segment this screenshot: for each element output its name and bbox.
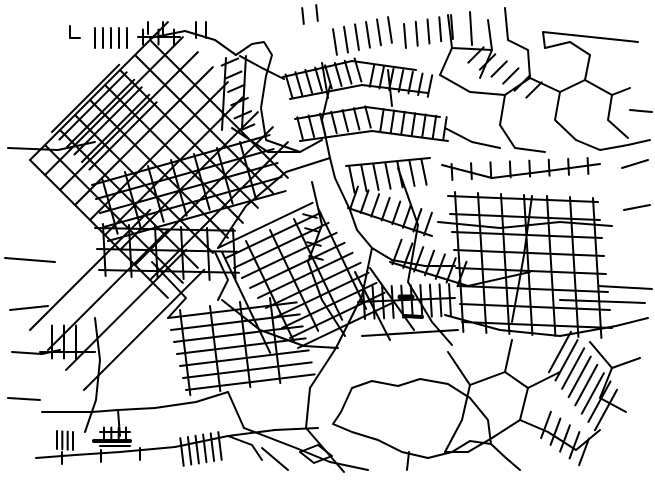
tight-ladder-rungs (439, 284, 441, 316)
rc-band-rungs-1 (349, 167, 354, 192)
ladderband-rungs-3 (309, 115, 315, 136)
road (624, 205, 650, 210)
ladderband-rungs-1 (305, 70, 312, 93)
ladderband-rungs-4 (412, 113, 415, 135)
ladderband-rungs-4 (401, 112, 404, 134)
midleft-diagonals (100, 163, 278, 213)
road (612, 358, 640, 368)
road (10, 306, 48, 310)
ladderband-rungs-4 (433, 116, 436, 138)
leftband-rungs (225, 72, 242, 79)
road (445, 128, 500, 148)
ladderband-rungs-3 (354, 108, 360, 129)
road (228, 392, 244, 428)
rc-band-rungs-2 (403, 205, 411, 228)
ladderband-rungs-4 (391, 110, 394, 132)
rightgrid-horizontals (448, 196, 598, 202)
tight-ladder-rungs (373, 287, 375, 319)
left-extension-diag (48, 230, 168, 350)
road (470, 372, 528, 438)
road (262, 448, 288, 470)
road (585, 80, 630, 95)
center-ladder (266, 263, 361, 308)
rightgrid-top-rungs (568, 159, 569, 175)
rightgrid-horizontals (460, 304, 610, 310)
road (42, 408, 155, 412)
ladderband-rungs-3 (331, 112, 337, 133)
tight-ladder-rungs (449, 284, 451, 316)
rightgrid-top-rungs (490, 162, 491, 178)
road (512, 196, 532, 322)
road (598, 286, 652, 289)
rightgrid-verticals (501, 194, 509, 334)
lower-ladder (174, 326, 303, 342)
br-diag-fan (562, 348, 584, 388)
br-diag-fan (549, 332, 571, 372)
rc-band-rungs-2 (382, 198, 390, 221)
road (555, 92, 576, 140)
top-fan-a (333, 29, 337, 55)
ladderband-rungs-4 (422, 114, 425, 136)
top-fan-a (355, 24, 359, 50)
topleft-subblocks (52, 65, 119, 132)
road (505, 8, 508, 40)
rightgrid-top-rungs (549, 160, 550, 176)
bl-wavy-fan (203, 435, 206, 463)
rightgrid-verticals (524, 195, 532, 335)
ladderband-rungs-3 (365, 106, 371, 127)
lower-ladder (180, 350, 309, 366)
road (442, 164, 600, 178)
top-fan-a (377, 20, 381, 46)
road (333, 388, 520, 470)
bl-wavy-fan (188, 437, 191, 465)
rightgrid-verticals (455, 192, 463, 332)
bl-wavy-fan (180, 438, 183, 466)
br-diag-fan-2 (560, 425, 570, 451)
road (5, 258, 55, 262)
road (630, 110, 652, 112)
map-page (0, 0, 655, 484)
tight-ladder-rungs (382, 286, 384, 318)
rc-band-rungs-2 (392, 202, 400, 225)
road (470, 12, 472, 45)
ladderband-rungs-2 (370, 65, 374, 87)
top-fan-a (388, 17, 392, 43)
road (505, 340, 512, 372)
road (228, 436, 262, 460)
road (242, 56, 246, 128)
road (445, 352, 470, 452)
road (520, 420, 576, 450)
street-map-svg (0, 0, 655, 484)
ladderband-rungs-1 (315, 68, 322, 91)
road (590, 342, 612, 398)
rc-band-rungs-1 (373, 165, 378, 190)
rc-band-rungs-1 (385, 163, 390, 188)
tight-ladder-rungs (420, 285, 422, 317)
rc-band-rungs-3 (414, 247, 423, 271)
road (405, 316, 422, 317)
leftband-rungs (228, 85, 245, 92)
ladderband-rungs-4 (380, 109, 383, 131)
top-fan-b (428, 20, 430, 44)
rightgrid-horizontals (456, 268, 606, 274)
ladderband-rungs-1 (295, 72, 302, 95)
road (346, 158, 430, 166)
road (500, 95, 545, 152)
center-ladder (258, 253, 353, 298)
top-fan-small (302, 8, 304, 24)
ladderband-rungs-1 (286, 74, 293, 97)
road (407, 452, 409, 470)
rc-band-rungs-1 (421, 159, 426, 184)
br-diag-fan (569, 357, 591, 397)
road (446, 438, 492, 452)
ladderband-rungs-2 (379, 67, 383, 89)
br-diag-fan-2 (551, 419, 561, 445)
rightgrid-verticals (547, 196, 555, 336)
road (261, 76, 300, 152)
road (600, 398, 626, 412)
top-fan-a (366, 22, 370, 48)
topleft-subblocks (60, 72, 127, 139)
blocky-verticals (103, 224, 106, 276)
topright-diag-rungs (492, 61, 507, 76)
rightgrid-top-rungs (452, 164, 453, 180)
rc-band-rungs-2 (424, 213, 432, 236)
road (560, 300, 645, 303)
rc-band-rungs-2 (371, 194, 379, 217)
ladderband-rungs-1 (335, 63, 342, 86)
road (222, 58, 226, 130)
center-ladder (298, 303, 393, 348)
blocky-horizontals (97, 249, 237, 252)
tight-ladder-rungs (430, 285, 432, 317)
rc-band-rungs-2 (361, 190, 369, 213)
road (608, 95, 628, 138)
road (70, 26, 80, 38)
leftband-rungs (222, 58, 239, 65)
left-extension-diag (84, 270, 204, 390)
road (440, 15, 452, 75)
bl-wavy-fan (218, 432, 221, 460)
road (150, 31, 236, 55)
top-fan-a (344, 27, 348, 53)
ladderband-rungs-1 (345, 61, 352, 84)
road (452, 48, 492, 50)
rc-band-rungs-1 (361, 166, 366, 191)
br-diag-fan (575, 365, 597, 405)
road (576, 140, 650, 150)
top-fan-small (316, 5, 318, 21)
ladderband-rungs-3 (343, 110, 349, 131)
br-diag-fan (582, 373, 604, 413)
leftband-rungs (238, 124, 255, 131)
road (622, 160, 648, 168)
top-fan-b (416, 22, 418, 46)
br-diag-fan (556, 340, 578, 380)
rc-band-rungs-1 (409, 161, 414, 186)
lower-ladder (171, 314, 300, 330)
ladderband-rungs-3 (297, 117, 303, 138)
br-diag-fan (595, 390, 617, 430)
road (85, 318, 100, 432)
rightgrid-horizontals (458, 286, 608, 292)
topright-diag-rungs (526, 82, 541, 97)
topleft-subblocks (90, 102, 157, 169)
top-fan-b (404, 24, 406, 48)
rc-band-rungs-3 (425, 251, 434, 275)
rightgrid-horizontals (454, 250, 604, 256)
br-diag-fan-2 (570, 432, 580, 458)
bl-wavy-fan (196, 436, 199, 464)
rightgrid-top-rungs (471, 163, 472, 179)
lower-ladder (177, 338, 306, 354)
top-fan-b (439, 17, 441, 41)
br-diag-fan-2 (541, 412, 551, 438)
street-map (0, 0, 655, 484)
road (8, 398, 40, 400)
rightgrid-verticals (478, 193, 486, 333)
topright-diag-rungs (503, 68, 518, 83)
road (155, 392, 228, 408)
road (36, 428, 318, 458)
blocky-horizontals (99, 270, 239, 273)
bl-wavy-fan (211, 433, 214, 461)
